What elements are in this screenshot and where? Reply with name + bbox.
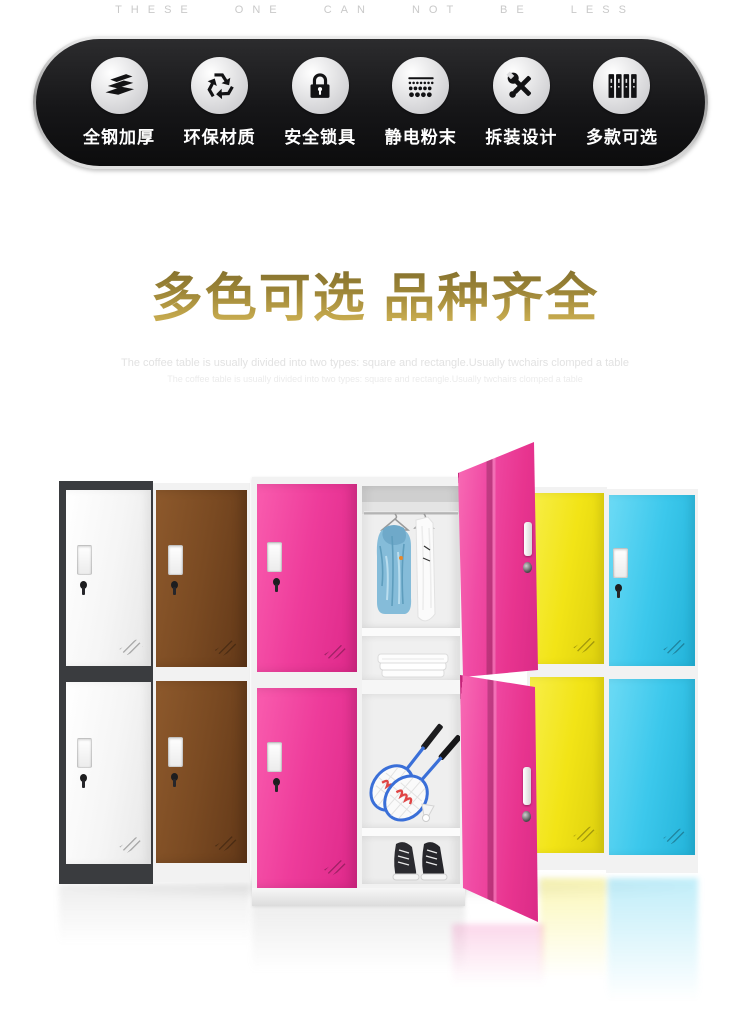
reflection-yellow bbox=[540, 878, 606, 978]
sneakers bbox=[393, 842, 447, 880]
reflection-front bbox=[252, 906, 465, 972]
keyhole-with-key bbox=[615, 584, 622, 592]
unit-base bbox=[252, 888, 465, 906]
vent-marks bbox=[573, 826, 597, 842]
locker-white-lower-door bbox=[66, 682, 151, 864]
open-door-lower bbox=[457, 673, 541, 925]
locker-brown-lower-door bbox=[156, 681, 247, 863]
vent-marks bbox=[663, 640, 687, 656]
door-lock bbox=[522, 811, 531, 822]
name-card-slot bbox=[77, 738, 92, 768]
locker-yellow-upper-door bbox=[530, 493, 604, 664]
name-card-slot bbox=[168, 737, 183, 767]
locker-unit-open bbox=[252, 477, 465, 906]
locker-brown-upper-door bbox=[156, 490, 247, 667]
keyhole-with-key bbox=[80, 581, 87, 589]
vent-marks bbox=[215, 640, 239, 656]
reflection-cyan bbox=[608, 878, 698, 1000]
vent-marks bbox=[573, 638, 597, 654]
shuttlecock bbox=[422, 804, 434, 822]
badminton-rackets bbox=[362, 713, 460, 828]
locker-pink-lower-door bbox=[257, 688, 357, 888]
keyhole-with-key bbox=[171, 773, 178, 781]
name-card-slot bbox=[168, 545, 183, 575]
vent-marks bbox=[663, 828, 687, 844]
locker-cyan-upper-door bbox=[609, 495, 695, 666]
open-door-upper bbox=[456, 440, 540, 680]
cabinet-interior bbox=[362, 486, 460, 886]
locker-cyan bbox=[606, 489, 698, 873]
name-card-slot bbox=[267, 542, 282, 572]
door-lock bbox=[523, 562, 532, 573]
keyhole-with-key bbox=[80, 774, 87, 782]
vent-marks bbox=[119, 837, 143, 853]
locker-cyan-lower-door bbox=[609, 679, 695, 855]
reflection-left bbox=[59, 884, 250, 944]
door-handle bbox=[523, 767, 531, 805]
keyhole-with-key bbox=[273, 578, 280, 586]
locker-white bbox=[59, 481, 153, 884]
white-garment bbox=[416, 517, 435, 621]
locker-white-upper-door bbox=[66, 490, 151, 666]
vent-marks bbox=[324, 645, 348, 661]
locker-product-scene bbox=[0, 0, 750, 1025]
vent-marks bbox=[119, 639, 143, 655]
product-detail-page: THESE ONE CAN NOT BE LESS 全钢加厚 bbox=[0, 0, 750, 1025]
open-door-inner-face bbox=[456, 440, 540, 680]
locker-pink-upper-door bbox=[257, 484, 357, 672]
cabinet-contents bbox=[362, 486, 460, 886]
keyhole-with-key bbox=[171, 581, 178, 589]
folded-towels bbox=[378, 654, 448, 677]
keyhole-with-key bbox=[273, 778, 280, 786]
vent-marks bbox=[215, 836, 239, 852]
denim-jacket bbox=[377, 525, 411, 614]
locker-brown bbox=[153, 483, 250, 882]
locker-yellow bbox=[527, 487, 607, 870]
reflection-pink bbox=[452, 924, 544, 986]
name-card-slot bbox=[267, 742, 282, 772]
vent-marks bbox=[324, 860, 348, 876]
locker-yellow-lower-door bbox=[530, 677, 604, 853]
name-card-slot bbox=[613, 548, 628, 578]
name-card-slot bbox=[77, 545, 92, 575]
door-handle bbox=[524, 522, 532, 556]
